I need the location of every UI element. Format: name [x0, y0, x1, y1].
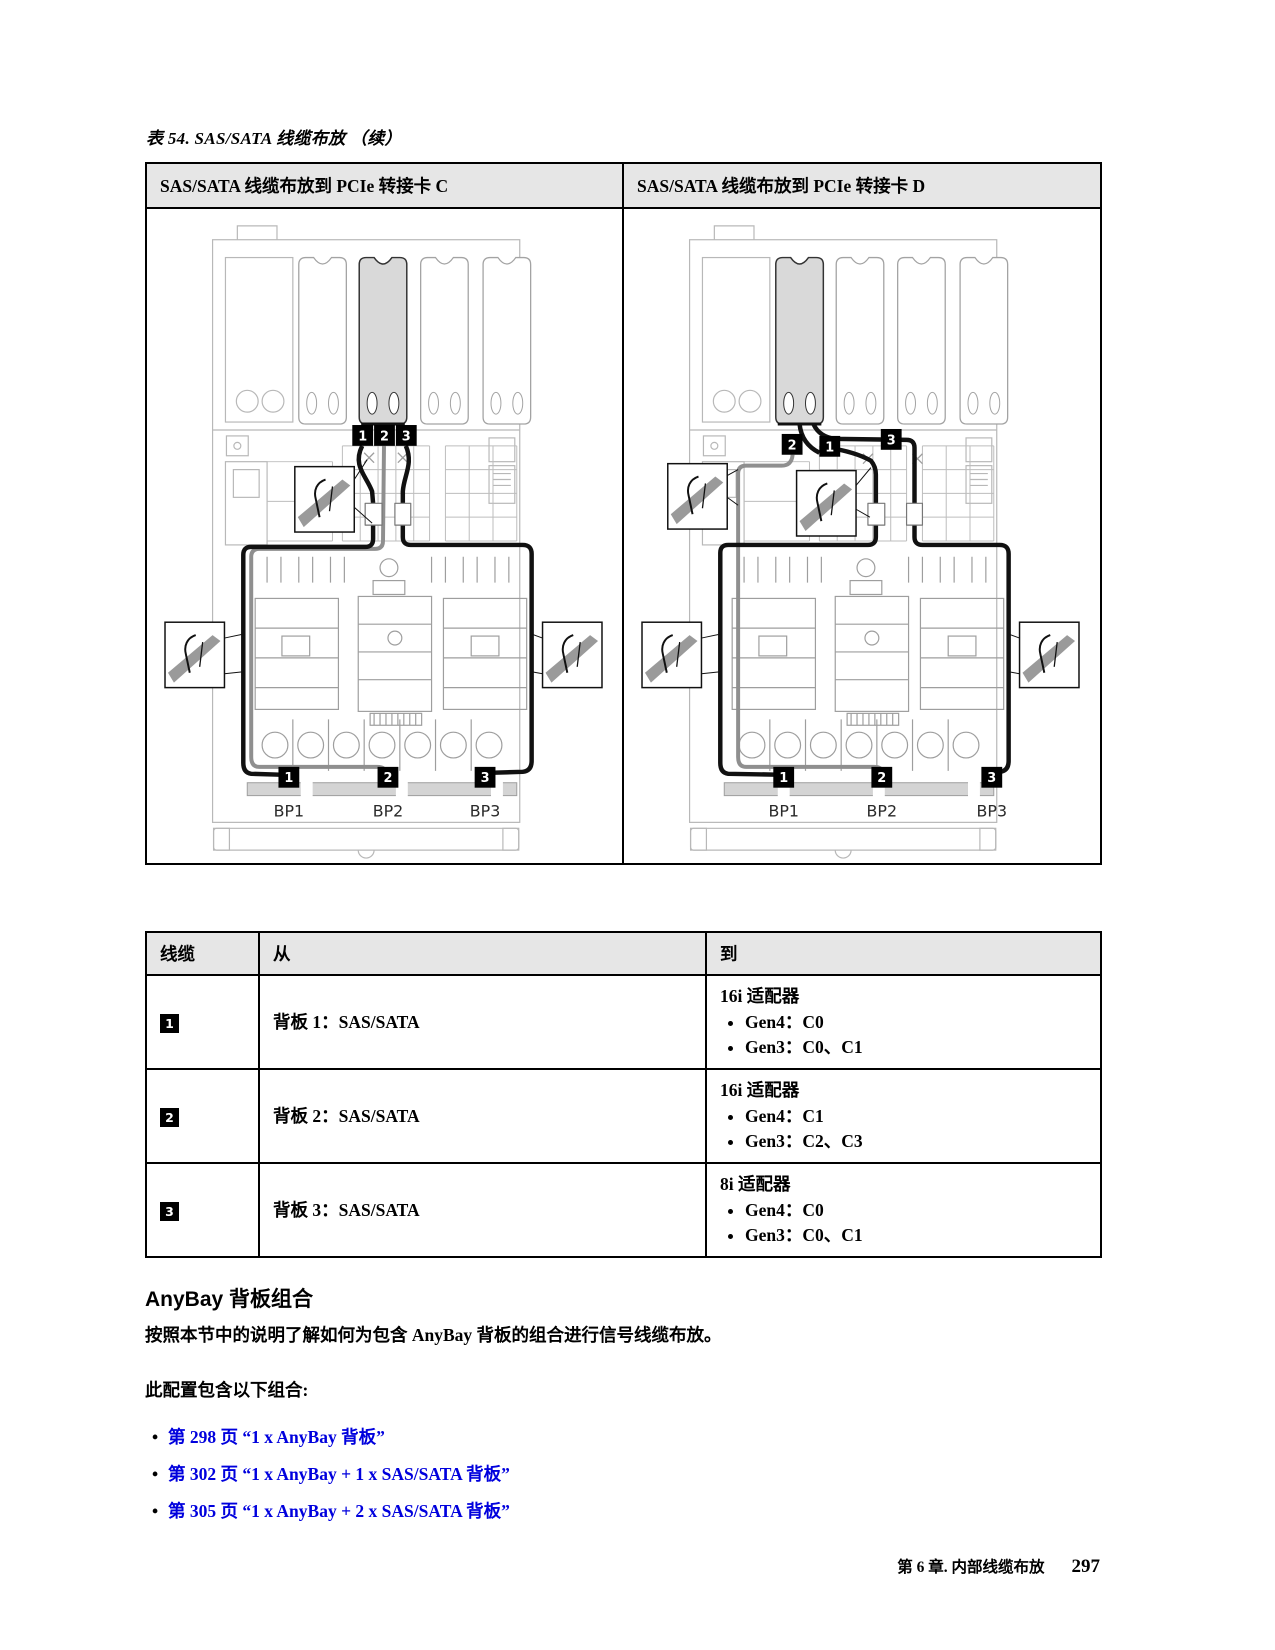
callout-badges-top: 1 2 3	[352, 425, 416, 446]
from-cell: 背板 3：SAS/SATA	[259, 1163, 706, 1257]
cable-routing-diagram-table: SAS/SATA 线缆布放到 PCIe 转接卡 C SAS/SATA 线缆布放到…	[145, 162, 1102, 865]
detail-insets	[642, 464, 1079, 688]
col-header-cable: 线缆	[146, 932, 259, 975]
to-cell: 8i 适配器 Gen4：C0 Gen3：C0、C1	[706, 1163, 1101, 1257]
document-page: 表 54. SAS/SATA 线缆布放 （续） SAS/SATA 线缆布放到 P…	[0, 0, 1275, 1650]
svg-text:1: 1	[779, 771, 788, 786]
svg-text:3: 3	[887, 433, 896, 448]
bullet-icon: •	[152, 1427, 168, 1448]
from-cell: 背板 1：SAS/SATA	[259, 975, 706, 1069]
adapter-port: Gen4：C1	[745, 1104, 1087, 1128]
svg-text:2: 2	[383, 771, 392, 786]
pcie-riser-slots	[299, 258, 531, 424]
svg-text:BP1: BP1	[274, 801, 305, 820]
section-heading-anybay: AnyBay 背板组合	[145, 1283, 1100, 1313]
cable-3-loop	[403, 525, 532, 773]
adapter-title: 8i 适配器	[720, 1172, 1087, 1196]
cable-paths	[243, 446, 531, 777]
cable-detail-table: 线缆 从 到 1 背板 1：SAS/SATA 16i 适配器 Gen4：C0 G…	[145, 931, 1102, 1258]
list-item: • 第 298 页 “1 x AnyBay 背板”	[145, 1424, 1100, 1449]
svg-text:2: 2	[380, 429, 389, 444]
svg-text:1: 1	[825, 440, 834, 455]
col-header-from: 从	[259, 932, 706, 975]
cable-paths	[720, 424, 1008, 777]
adapter-port: Gen4：C0	[745, 1198, 1087, 1222]
highlighted-riser-d	[776, 258, 824, 424]
bullet-icon: •	[152, 1501, 168, 1522]
routing-header-riser-c: SAS/SATA 线缆布放到 PCIe 转接卡 C	[146, 163, 623, 208]
pcie-riser-slots	[776, 258, 1008, 424]
svg-text:1: 1	[358, 429, 367, 444]
svg-text:2: 2	[788, 438, 797, 453]
diagram-cell-riser-d: 2 1 3 1 2 3	[623, 208, 1101, 864]
page-footer: 第 6 章. 内部线缆布放297	[897, 1555, 1100, 1578]
svg-text:BP3: BP3	[977, 801, 1008, 820]
svg-text:BP2: BP2	[867, 801, 898, 820]
adapter-port: Gen3：C2、C3	[745, 1129, 1087, 1153]
footer-page-number: 297	[1072, 1556, 1101, 1577]
to-cell: 16i 适配器 Gen4：C1 Gen3：C2、C3	[706, 1069, 1101, 1163]
routing-header-riser-d: SAS/SATA 线缆布放到 PCIe 转接卡 D	[623, 163, 1101, 208]
svg-text:BP2: BP2	[373, 801, 404, 820]
table-row: 2 背板 2：SAS/SATA 16i 适配器 Gen4：C1 Gen3：C2、…	[146, 1069, 1101, 1163]
cable-badge-1: 1	[160, 1014, 179, 1033]
diagram-cell-riser-c: 1 2 3 1 2 3	[146, 208, 623, 864]
adapter-port: Gen3：C0、C1	[745, 1035, 1087, 1059]
svg-text:1: 1	[284, 771, 293, 786]
svg-text:2: 2	[877, 771, 886, 786]
svg-text:BP1: BP1	[768, 801, 799, 820]
svg-text:3: 3	[402, 429, 411, 444]
table-row: 1 背板 1：SAS/SATA 16i 适配器 Gen4：C0 Gen3：C0、…	[146, 975, 1101, 1069]
svg-text:3: 3	[987, 771, 996, 786]
link-1x-anybay-2x-sassata[interactable]: 第 305 页 “1 x AnyBay + 2 x SAS/SATA 背板”	[168, 1498, 510, 1523]
backplane-labels: BP1 BP2 BP3	[768, 801, 1007, 820]
backplane-labels: BP1 BP2 BP3	[274, 801, 501, 820]
adapter-title: 16i 适配器	[720, 984, 1087, 1008]
cable-routing-diagram-c: 1 2 3 1 2 3	[148, 210, 619, 862]
link-1x-anybay[interactable]: 第 298 页 “1 x AnyBay 背板”	[168, 1424, 385, 1449]
combination-link-list: • 第 298 页 “1 x AnyBay 背板” • 第 302 页 “1 x…	[145, 1424, 1100, 1523]
cable-badge-3: 3	[160, 1202, 179, 1221]
adapter-port: Gen3：C0、C1	[745, 1223, 1087, 1247]
to-cell: 16i 适配器 Gen4：C0 Gen3：C0、C1	[706, 975, 1101, 1069]
footer-chapter: 第 6 章. 内部线缆布放	[897, 1559, 1044, 1576]
svg-text:BP3: BP3	[470, 801, 501, 820]
cable-clips	[364, 453, 408, 463]
bullet-icon: •	[152, 1464, 168, 1485]
config-line: 此配置包含以下组合:	[145, 1377, 1100, 1403]
cable-badge-2: 2	[160, 1108, 179, 1127]
link-1x-anybay-1x-sassata[interactable]: 第 302 页 “1 x AnyBay + 1 x SAS/SATA 背板”	[168, 1461, 510, 1486]
cable-routing-diagram-d: 2 1 3 1 2 3	[625, 210, 1096, 862]
list-item: • 第 302 页 “1 x AnyBay + 1 x SAS/SATA 背板”	[145, 1461, 1100, 1486]
svg-text:3: 3	[481, 771, 490, 786]
from-cell: 背板 2：SAS/SATA	[259, 1069, 706, 1163]
page-content: 表 54. SAS/SATA 线缆布放 （续） SAS/SATA 线缆布放到 P…	[145, 124, 1100, 1535]
adapter-title: 16i 适配器	[720, 1078, 1087, 1102]
highlighted-riser-c	[359, 258, 407, 424]
list-item: • 第 305 页 “1 x AnyBay + 2 x SAS/SATA 背板”	[145, 1498, 1100, 1523]
col-header-to: 到	[706, 932, 1101, 975]
table-row: 3 背板 3：SAS/SATA 8i 适配器 Gen4：C0 Gen3：C0、C…	[146, 1163, 1101, 1257]
table-caption: 表 54. SAS/SATA 线缆布放 （续）	[146, 124, 1100, 149]
section-intro: 按照本节中的说明了解如何为包含 AnyBay 背板的组合进行信号线缆布放。	[145, 1322, 1100, 1348]
adapter-port: Gen4：C0	[745, 1010, 1087, 1034]
